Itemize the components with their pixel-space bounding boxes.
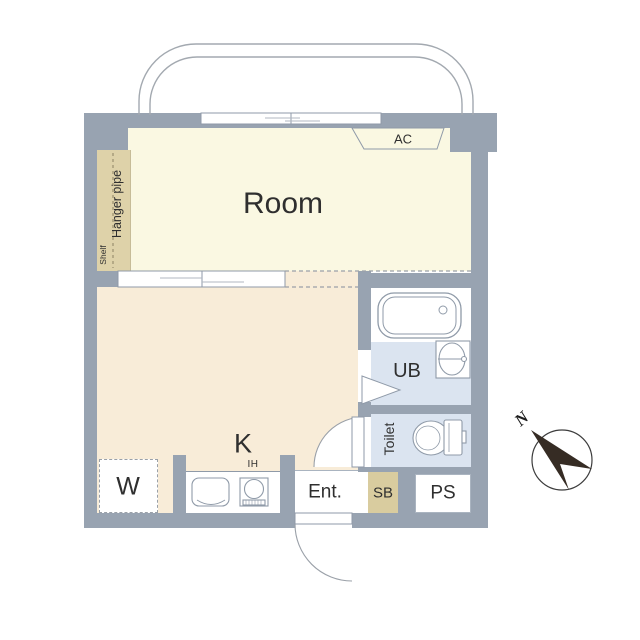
shoe-box-label: SB <box>373 486 393 501</box>
toilet-door <box>314 417 364 467</box>
washer-label: W <box>116 475 140 500</box>
sink-icon <box>192 478 229 506</box>
bathtub-icon <box>378 293 461 338</box>
hanger-pipe-label: Hanger pipe <box>111 170 124 238</box>
room-label: Room <box>243 189 323 219</box>
window <box>201 113 381 124</box>
balcony-outline <box>139 44 473 115</box>
entrance-label: Ent. <box>308 483 342 502</box>
floorplan-canvas: Room K UB Toilet Ent. SB PS W AC IH Hang… <box>0 0 640 640</box>
toilet-label: Toilet <box>382 423 396 456</box>
dashed-boundaries <box>285 271 471 287</box>
pipe-space-label: PS <box>430 484 455 503</box>
ub-label: UB <box>393 361 421 381</box>
ih-label: IH <box>248 460 259 470</box>
washbasin-icon <box>436 341 470 378</box>
partition-sliding-door <box>118 271 285 287</box>
kitchen-label: K <box>234 431 252 458</box>
ac-label: AC <box>394 133 412 146</box>
toilet-icon <box>413 420 466 455</box>
entrance-door <box>295 513 352 581</box>
compass-icon <box>531 430 592 490</box>
ih-stove-icon <box>240 478 268 506</box>
plan-linework <box>0 0 640 640</box>
shelf-label: Shelf <box>99 245 108 264</box>
